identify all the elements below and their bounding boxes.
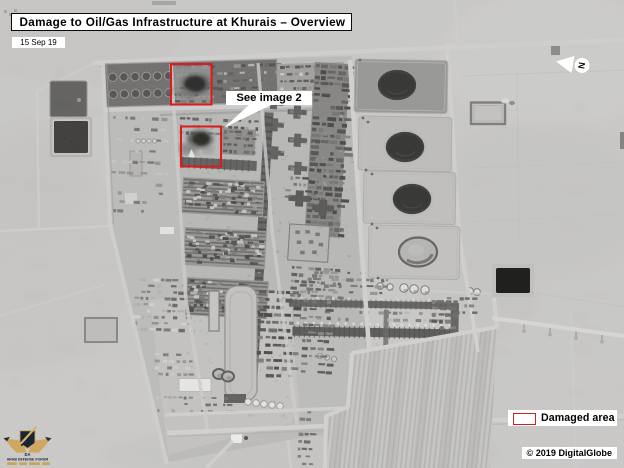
svg-text:DA: DA: [24, 452, 30, 457]
svg-text:ARAB DEFENSE FORUM: ARAB DEFENSE FORUM: [7, 457, 49, 461]
